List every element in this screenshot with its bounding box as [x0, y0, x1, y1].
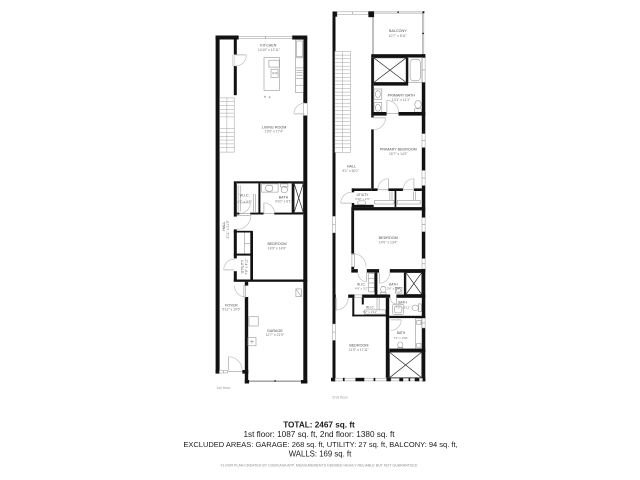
svg-text:BEDROOM: BEDROOM — [349, 344, 368, 348]
svg-text:14'9" x 13'4": 14'9" x 13'4" — [379, 241, 398, 245]
svg-text:BEDROOM: BEDROOM — [267, 242, 286, 246]
svg-text:BATH: BATH — [398, 300, 407, 304]
svg-text:W.I.C.: W.I.C. — [240, 194, 250, 198]
svg-text:2nd floor: 2nd floor — [332, 395, 348, 400]
svg-text:TOTAL: 2467 sq. ft: TOTAL: 2467 sq. ft — [283, 421, 355, 430]
svg-text:19'0" x 17'4": 19'0" x 17'4" — [265, 130, 284, 134]
svg-text:8'1" x 50'1": 8'1" x 50'1" — [342, 169, 360, 173]
svg-text:PRIMARY BATH: PRIMARY BATH — [388, 93, 416, 97]
svg-text:KITCHEN: KITCHEN — [260, 43, 277, 47]
svg-text:BEDROOM: BEDROOM — [379, 236, 398, 240]
svg-text:7'3" x 13'8": 7'3" x 13'8" — [394, 336, 409, 340]
svg-text:11'9" x 17'11": 11'9" x 17'11" — [349, 348, 370, 352]
svg-text:15'7" x 14'2": 15'7" x 14'2" — [389, 152, 408, 156]
svg-text:BALCONY: BALCONY — [389, 29, 407, 33]
svg-text:9'10" x 6'1": 9'10" x 6'1" — [275, 200, 293, 204]
svg-text:13'1" x 11'1": 13'1" x 11'1" — [392, 98, 411, 102]
svg-text:PRIMARY BEDROOM: PRIMARY BEDROOM — [380, 147, 417, 151]
svg-text:1st floor: 1st floor — [216, 385, 231, 390]
svg-text:14'10" x 12'11": 14'10" x 12'11" — [258, 48, 281, 52]
svg-text:HALL: HALL — [347, 164, 356, 168]
svg-text:BATH: BATH — [397, 331, 406, 335]
svg-text:3'11" x 21'5": 3'11" x 21'5" — [226, 219, 230, 238]
svg-text:7'0" x 3'11": 7'0" x 3'11" — [396, 306, 411, 310]
svg-text:1st floor: 1087 sq. ft, 2nd fl: 1st floor: 1087 sq. ft, 2nd floor: 1380 … — [243, 430, 395, 439]
svg-text:12'7" x 21'9": 12'7" x 21'9" — [266, 333, 285, 337]
svg-text:FLOOR PLAN CREATED BY CUBICASA: FLOOR PLAN CREATED BY CUBICASA APP. MEAS… — [221, 463, 418, 467]
svg-text:EXCLUDED AREAS: GARAGE: 268 sq: EXCLUDED AREAS: GARAGE: 268 sq. ft, UTIL… — [183, 440, 457, 449]
svg-text:W.I.C.: W.I.C. — [366, 305, 375, 309]
svg-text:5'11" x 19'5": 5'11" x 19'5" — [222, 308, 241, 312]
svg-text:3'10" x 2'3": 3'10" x 2'3" — [355, 197, 370, 201]
svg-text:3'6" x 3'6": 3'6" x 3'6" — [387, 286, 400, 290]
svg-text:UTILITY: UTILITY — [240, 259, 244, 273]
svg-text:WALLS: 169 sq. ft: WALLS: 169 sq. ft — [289, 450, 352, 459]
svg-text:14'9" x 14'9": 14'9" x 14'9" — [268, 247, 287, 251]
svg-text:7'2" x 2'11": 7'2" x 2'11" — [363, 310, 378, 314]
svg-text:4'6" x 3'2": 4'6" x 3'2" — [355, 287, 368, 291]
svg-text:10'7" x 8'11": 10'7" x 8'11" — [389, 34, 408, 38]
svg-text:7'8" x 4'11": 7'8" x 4'11" — [245, 257, 249, 274]
